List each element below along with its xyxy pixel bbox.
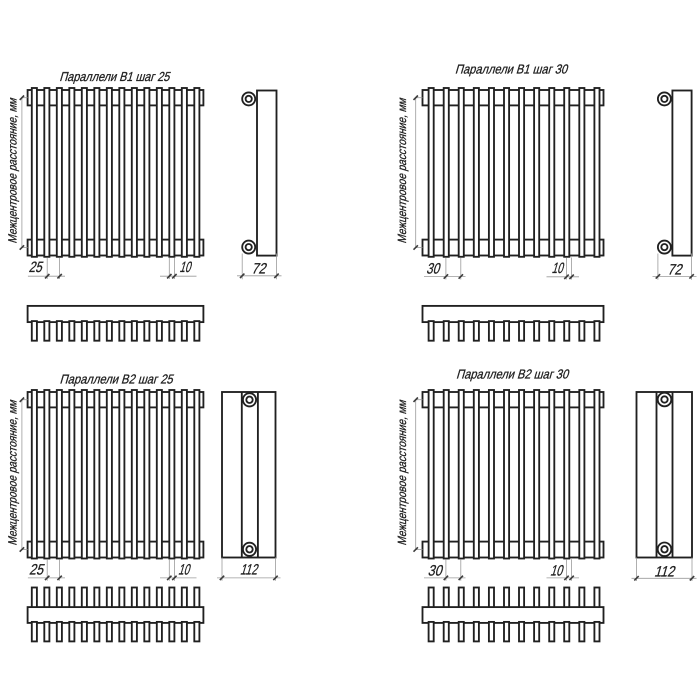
svg-text:Межцентровое расстояние, мм: Межцентровое расстояние, мм bbox=[395, 96, 409, 245]
svg-text:Параллели В1 шаг 25: Параллели В1 шаг 25 bbox=[58, 69, 172, 84]
svg-text:Параллели В2 шаг 30: Параллели В2 шаг 30 bbox=[455, 367, 571, 382]
svg-text:Межцентровое расстояние, мм: Межцентровое расстояние, мм bbox=[6, 96, 20, 245]
svg-text:Межцентровое расстояние, мм: Межцентровое расстояние, мм bbox=[6, 398, 20, 547]
svg-text:Межцентровое расстояние, мм: Межцентровое расстояние, мм bbox=[395, 398, 409, 547]
svg-text:Параллели В1 шаг 30: Параллели В1 шаг 30 bbox=[454, 62, 570, 77]
svg-text:Параллели В2 шаг 25: Параллели В2 шаг 25 bbox=[59, 372, 176, 387]
